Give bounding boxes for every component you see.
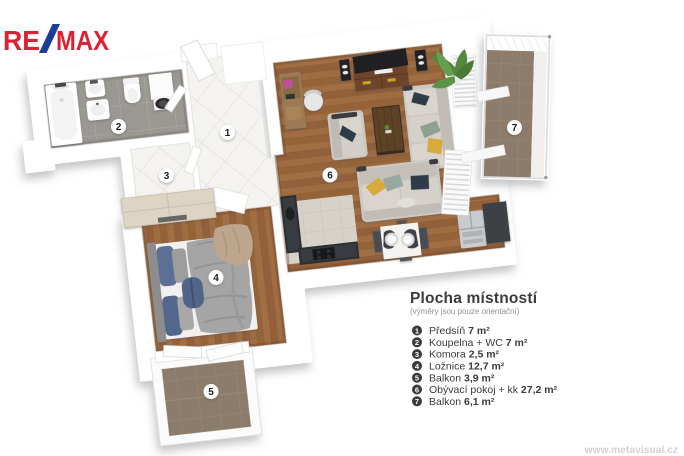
svg-text:4: 4	[213, 273, 219, 284]
svg-text:Plocha místností: Plocha místností	[410, 290, 538, 307]
svg-text:2: 2	[415, 338, 419, 347]
svg-text:Koupelna + WC 7 m²: Koupelna + WC 7 m²	[429, 337, 528, 349]
svg-text:5: 5	[208, 387, 214, 398]
svg-text:www.metavisual.cz: www.metavisual.cz	[584, 445, 678, 456]
svg-text:2: 2	[116, 122, 122, 133]
svg-text:Balkon 6,1 m²: Balkon 6,1 m²	[429, 396, 495, 408]
svg-text:Obývací pokoj + kk 27,2 m²: Obývací pokoj + kk 27,2 m²	[429, 384, 558, 396]
svg-text:Komora 2,5 m²: Komora 2,5 m²	[429, 349, 500, 361]
svg-text:Předsíň 7 m²: Předsíň 7 m²	[429, 325, 490, 337]
svg-text:MAX: MAX	[56, 25, 109, 56]
svg-text:Ložnice 12,7 m²: Ložnice 12,7 m²	[429, 361, 505, 373]
svg-text:7: 7	[512, 123, 518, 134]
svg-text:6: 6	[415, 385, 419, 394]
svg-text:Balkon 3,9 m²: Balkon 3,9 m²	[429, 372, 495, 384]
svg-text:3: 3	[415, 350, 419, 359]
svg-text:(výměry jsou pouze orientační): (výměry jsou pouze orientační)	[410, 307, 520, 316]
svg-text:1: 1	[225, 128, 231, 139]
svg-text:RE: RE	[3, 25, 40, 56]
svg-text:1: 1	[415, 326, 419, 335]
svg-text:6: 6	[327, 170, 333, 181]
svg-text:5: 5	[415, 374, 419, 383]
svg-text:3: 3	[164, 171, 170, 182]
svg-text:7: 7	[415, 397, 419, 406]
